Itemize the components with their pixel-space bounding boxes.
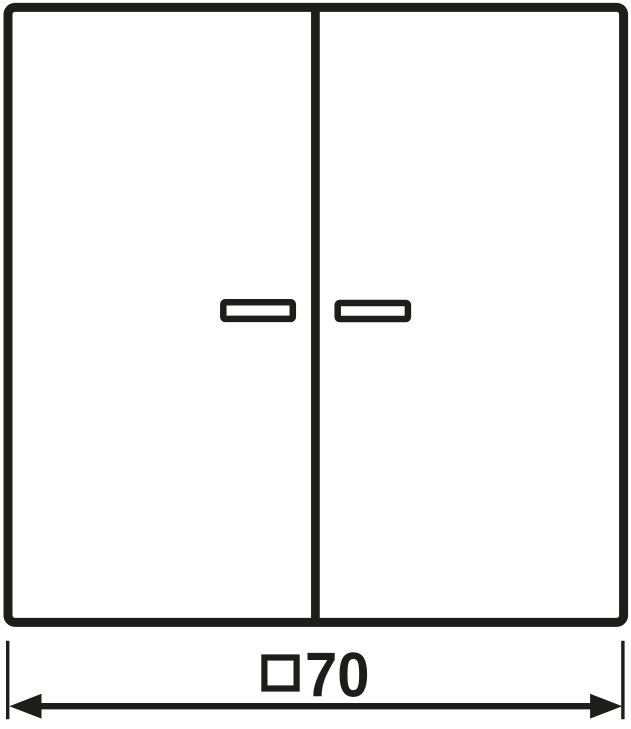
- svg-text:70: 70: [305, 640, 370, 710]
